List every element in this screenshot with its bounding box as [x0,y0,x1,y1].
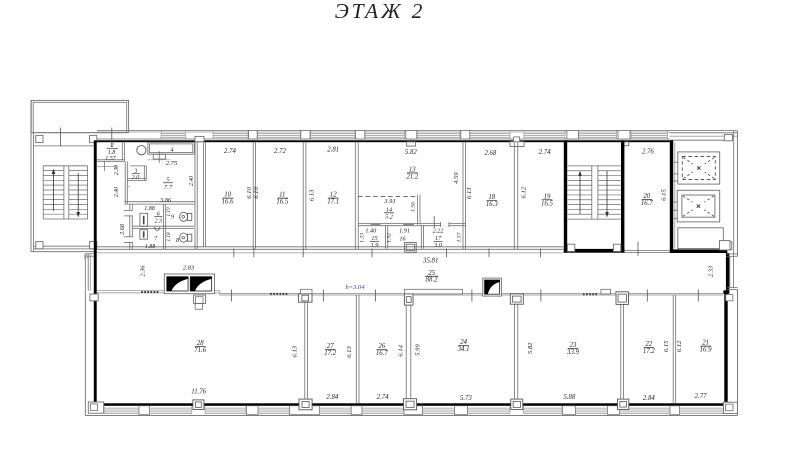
svg-text:6.15: 6.15 [661,189,668,201]
svg-text:19: 19 [544,193,551,200]
svg-text:6.12: 6.12 [676,340,683,352]
svg-text:16.6: 16.6 [222,199,234,206]
svg-text:17.2: 17.2 [324,350,336,357]
svg-text:1.88: 1.88 [144,206,155,212]
svg-text:1.57: 1.57 [105,156,117,162]
svg-text:2.76: 2.76 [642,148,654,155]
svg-text:34.1: 34.1 [457,346,470,353]
svg-text:16.3: 16.3 [486,201,498,208]
svg-text:5.88: 5.88 [563,394,575,401]
svg-text:26: 26 [378,343,385,350]
svg-text:2.84: 2.84 [326,394,338,401]
svg-text:5.99: 5.99 [414,344,421,356]
svg-text:2.74: 2.74 [377,394,389,401]
svg-text:6.13: 6.13 [308,189,315,201]
svg-text:1.19: 1.19 [166,207,172,216]
svg-text:24: 24 [460,339,467,346]
svg-text:5.73: 5.73 [460,395,472,402]
svg-text:8: 8 [176,238,179,244]
svg-text:11: 11 [279,192,285,199]
svg-text:17.2: 17.2 [643,348,655,355]
svg-text:2.40: 2.40 [113,187,120,197]
svg-text:22: 22 [645,341,652,348]
svg-text:6.15: 6.15 [663,340,670,352]
svg-text:6.13: 6.13 [466,187,473,199]
svg-text:88.2: 88.2 [426,277,438,284]
svg-text:2.68: 2.68 [484,150,496,157]
svg-text:3.0: 3.0 [433,242,443,249]
svg-text:33.9: 33.9 [566,349,579,356]
svg-text:6.13: 6.13 [346,346,353,358]
svg-text:5.2: 5.2 [385,213,393,220]
svg-text:1.8: 1.8 [108,150,116,156]
svg-text:16.7: 16.7 [376,350,388,357]
svg-text:16.9: 16.9 [700,347,712,354]
svg-text:2.68: 2.68 [119,223,126,235]
svg-text:1.88: 1.88 [145,244,156,250]
svg-text:21: 21 [702,340,709,347]
svg-text:17.1: 17.1 [327,199,339,206]
svg-text:6.13: 6.13 [292,345,299,357]
svg-text:21.2: 21.2 [406,173,418,180]
svg-text:12: 12 [330,192,337,199]
svg-text:2.74: 2.74 [539,149,551,156]
svg-text:5.82: 5.82 [527,342,534,354]
svg-text:2.75: 2.75 [166,160,178,167]
svg-text:2.40: 2.40 [188,176,195,186]
svg-text:1.91: 1.91 [399,227,410,234]
svg-text:2.0: 2.0 [132,174,141,181]
svg-text:18: 18 [488,194,495,201]
svg-text:1.9: 1.9 [371,242,379,249]
svg-text:6.10: 6.10 [253,187,260,199]
svg-text:1.37: 1.37 [456,232,462,242]
svg-text:2.72: 2.72 [274,148,286,155]
svg-text:6.12: 6.12 [521,186,528,198]
svg-text:2.22: 2.22 [433,227,444,234]
svg-text:2.83: 2.83 [183,265,195,272]
svg-text:4.59: 4.59 [453,172,460,184]
svg-text:16.5: 16.5 [276,199,288,206]
svg-text:3.91: 3.91 [383,198,396,205]
svg-text:11.76: 11.76 [191,389,206,396]
svg-text:5.82: 5.82 [405,149,417,156]
svg-text:2.81: 2.81 [327,147,339,154]
svg-text:16: 16 [399,236,406,243]
svg-text:2.36: 2.36 [140,265,147,277]
svg-text:1.18: 1.18 [166,232,172,241]
svg-text:27: 27 [327,343,334,350]
svg-text:10: 10 [224,192,231,199]
svg-text:16.5: 16.5 [541,200,553,207]
svg-text:16.7: 16.7 [641,200,653,207]
svg-text:1.32: 1.32 [387,233,393,243]
svg-text:2.77: 2.77 [695,393,707,400]
svg-text:2.30: 2.30 [114,165,120,175]
svg-text:2.3: 2.3 [155,219,163,225]
svg-text:1.40: 1.40 [365,227,377,234]
svg-text:6.14: 6.14 [398,344,405,356]
svg-text:h=3.04: h=3.04 [345,284,365,291]
svg-text:28: 28 [197,340,204,347]
svg-text:2.84: 2.84 [643,395,655,402]
svg-text:ЭТАЖ 2: ЭТАЖ 2 [335,0,425,23]
svg-text:1.33: 1.33 [359,233,365,243]
svg-text:14: 14 [386,206,392,213]
svg-text:13: 13 [409,166,416,173]
svg-text:20: 20 [643,193,650,200]
svg-text:23: 23 [570,342,577,349]
svg-text:71.6: 71.6 [194,347,206,354]
svg-text:2.33: 2.33 [707,266,714,277]
svg-text:7.7: 7.7 [164,184,173,191]
svg-text:3.86: 3.86 [159,197,172,204]
svg-text:2.74: 2.74 [224,148,236,155]
svg-text:35.81: 35.81 [422,257,438,264]
svg-text:1.56: 1.56 [410,202,416,212]
